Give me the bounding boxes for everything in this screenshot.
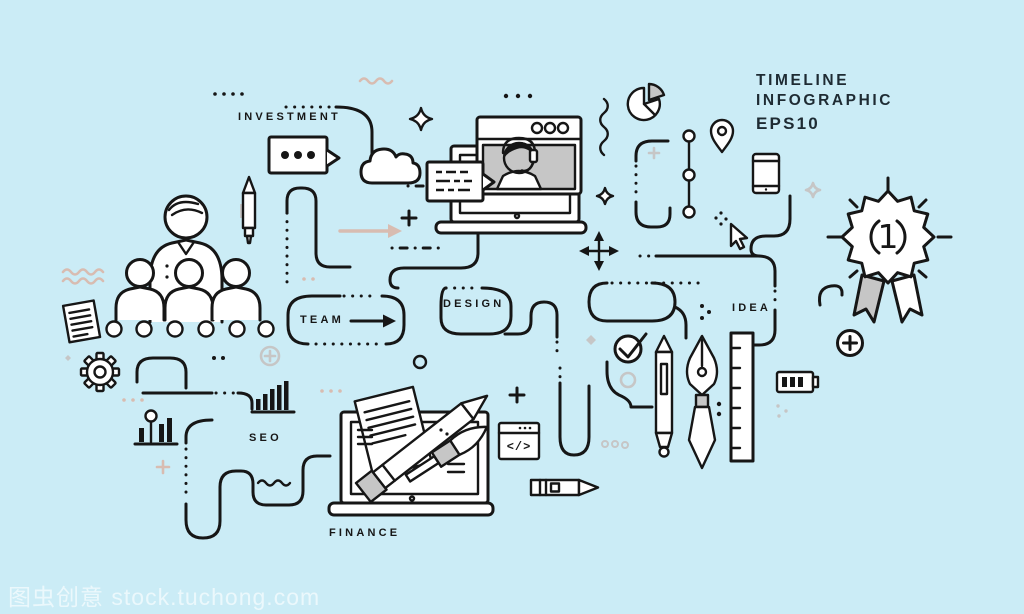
milestone-line-icon: [684, 131, 695, 218]
plus-icon: [157, 461, 169, 473]
battery-icon: [777, 372, 818, 392]
label-idea: IDEA: [732, 302, 771, 314]
sparkle-icon: [806, 183, 820, 197]
move-arrows-icon: [579, 231, 619, 271]
squiggle-icon: [63, 279, 103, 284]
code-glyph: </>: [500, 440, 538, 454]
diamond-icon: [65, 355, 71, 361]
squiggle-icon: [63, 270, 103, 275]
label-design: DESIGN: [443, 298, 504, 310]
zigzag-line-icon: [600, 99, 608, 155]
fountain-pen-icon: [687, 336, 717, 468]
circle-decor: [414, 356, 426, 368]
dots-decor: [776, 404, 787, 417]
stylus-pen-icon: [656, 336, 672, 457]
sparkle-icon: [597, 188, 613, 204]
gear-icon: [81, 353, 119, 391]
plus-icon: [510, 388, 524, 402]
pie-chart-icon: [628, 84, 664, 120]
dots-decor: [602, 441, 628, 448]
chat-bubble-dots-icon: [269, 137, 339, 173]
title-line-1: TIMELINE: [756, 71, 893, 91]
label-investment: INVESTMENT: [238, 111, 341, 123]
checkmark-circle-icon: [615, 334, 646, 362]
mouse-cursor-icon: [714, 211, 747, 249]
arrow-right-icon: [351, 315, 396, 328]
label-team: TEAM: [300, 314, 344, 326]
cloud-icon: [361, 149, 420, 183]
bar-chart-icon: [252, 381, 294, 412]
watermark: 图虫创意 stock.tuchong.com: [8, 578, 320, 612]
infographic-stage: TIMELINE INFOGRAPHIC EPS10 INVESTMENT TE…: [0, 0, 1024, 614]
badge-rank-number: 1: [876, 217, 900, 257]
plus-icon: [649, 148, 659, 158]
sparkle-icon: [410, 108, 432, 130]
title-eps: EPS10: [756, 114, 893, 134]
title-line-2: INFOGRAPHIC: [756, 91, 893, 111]
diamond-icon: [586, 335, 596, 345]
squiggle-icon: [360, 79, 392, 84]
laptop-workspace-icon: [329, 386, 494, 515]
pencil-icon: [240, 177, 255, 243]
smartphone-icon: [753, 154, 779, 193]
document-icon: [63, 300, 100, 342]
plus-circle-icon: [838, 331, 863, 356]
plus-icon: [402, 211, 416, 225]
circle-decor: [621, 373, 635, 387]
bar-chart-lollipop-icon: [135, 411, 177, 445]
title-block: TIMELINE INFOGRAPHIC EPS10: [756, 71, 893, 134]
timeline-node-dots: [107, 322, 274, 337]
label-seo: SEO: [249, 432, 282, 444]
location-pin-icon: [711, 120, 733, 152]
label-finance: FINANCE: [329, 527, 400, 539]
plus-circle-icon: [261, 347, 279, 365]
message-bubble-icon: [427, 162, 494, 201]
arrow-right-soft-icon: [340, 224, 402, 238]
ruler-icon: [731, 333, 753, 461]
pencil-horizontal-icon: [531, 480, 598, 495]
team-group-icon: [116, 196, 260, 322]
